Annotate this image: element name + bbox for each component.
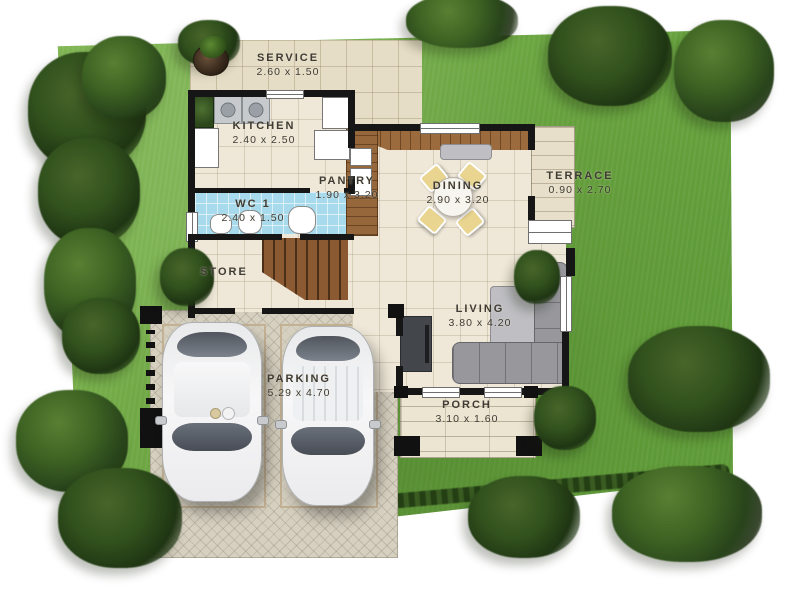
wall [562,330,569,392]
room-label-parking: PARKING 5.29 x 4.70 [267,373,331,400]
porch-post [524,386,538,398]
sofa-icon [452,342,568,384]
wall [528,124,535,150]
wall [354,124,420,131]
pantry-appliance [350,148,372,166]
wall [300,90,354,97]
kitchen-counter [314,130,350,160]
floor-plan-canvas: SERVICE 2.60 x 1.50 KITCHEN 2.40 x 2.50 … [0,0,800,600]
car-left-icon [162,322,262,502]
room-label-store: STORE [200,266,248,280]
window [484,387,522,398]
wall [188,90,268,97]
wall [188,308,235,314]
carport-post [388,304,404,318]
wall [188,90,195,214]
window [560,276,572,332]
carport-post [140,306,162,324]
wall [188,234,282,240]
plant-box-icon [192,96,214,128]
tree-icon [468,476,580,558]
tree-icon [406,0,518,48]
room-label-terrace: TERRACE 0.90 x 2.70 [546,170,613,197]
room-label-living: LIVING 3.80 x 4.20 [449,303,512,330]
terrace-window-box [528,220,572,244]
room-label-service: SERVICE 2.60 x 1.50 [257,52,320,79]
porch-post [516,436,542,456]
palm-icon [514,250,560,304]
service-door-opening [266,90,304,99]
wall [566,248,575,276]
wall [262,308,354,314]
carport-post [140,408,162,448]
stove-icon [193,128,219,168]
porch-post [394,386,408,398]
wall [300,234,354,240]
wall [458,388,484,395]
room-label-dining: DINING 2.90 x 3.20 [427,180,490,207]
wall [348,90,355,148]
tv-console-icon [400,316,432,372]
tree-icon [612,466,762,562]
wall [478,124,534,131]
room-label-kitchen: KITCHEN 2.40 x 2.50 [233,120,296,147]
room-label-wc1: WC 1 2.40 x 1.50 [222,198,285,225]
room-label-porch: PORCH 3.10 x 1.60 [436,399,499,426]
tree-icon [548,6,672,106]
window [422,387,460,398]
room-label-pantry: PANTRY 1.90 x 3.20 [316,175,379,202]
window [420,123,480,134]
car-right-icon [282,326,374,506]
tree-icon [58,468,182,568]
fence-dashes [146,330,155,404]
toilet-icon [288,206,316,234]
bush-icon [534,386,596,450]
tree-icon [62,298,140,374]
sideboard [440,144,492,160]
tree-icon [82,36,166,120]
porch-post [394,436,420,456]
wall [188,188,310,193]
tree-icon [674,20,774,122]
tree-icon [628,326,770,432]
